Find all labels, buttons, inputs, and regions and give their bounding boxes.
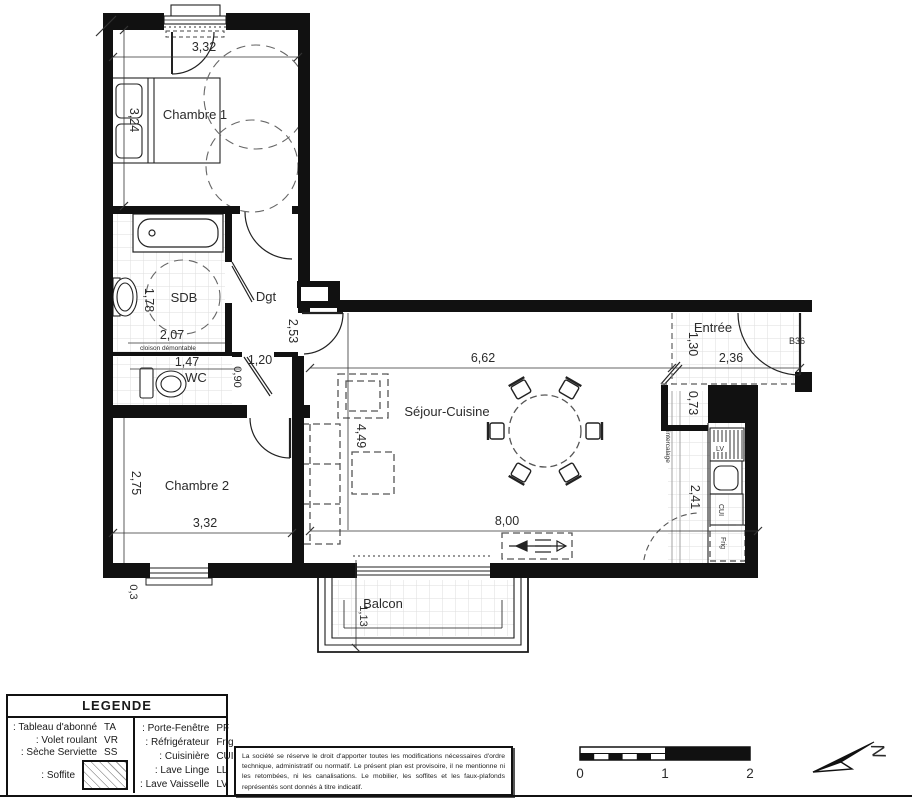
dim-sdb-width: 2,07: [160, 328, 184, 342]
dim-sejour-height: 4,49: [354, 424, 368, 448]
note-partition: cloison démontable: [140, 345, 196, 352]
cooker-label: CUI: [717, 504, 724, 516]
scale-bar: 0 1 2: [576, 747, 754, 781]
legend-item-label: : Tableau d'abonné: [13, 722, 97, 733]
dim-sejour-width: 6,62: [471, 351, 495, 365]
sheet-frame-line: [0, 795, 912, 797]
floor-plan-drawing: Chambre 1 SDB Dgt WC Chambre 2 Séjour-Cu…: [0, 0, 912, 800]
legend-item-label: : Lave Vaisselle: [140, 779, 209, 790]
dim-chambre2-height: 2,75: [129, 471, 143, 495]
fridge-label: Frig: [719, 537, 726, 549]
dining-chairs: [488, 377, 602, 485]
disclaimer-box: La société se réserve le droit d'apporte…: [234, 746, 513, 796]
dim-wc-door-height: 0,90: [231, 366, 243, 387]
legend-item: : Volet roulant VR: [13, 735, 128, 746]
dim-dgt-height: 2,53: [286, 319, 300, 343]
dim-sejour-total-width: 8,00: [495, 514, 519, 528]
dim-sdb-height: 1,78: [142, 288, 156, 312]
toilet: [140, 368, 186, 398]
legend-right-column: : Porte-Fenêtre PF : Réfrigérateur Frig …: [133, 718, 245, 793]
room-label-dgt: Dgt: [256, 289, 277, 304]
legend-left-column: : Tableau d'abonné TA : Volet roulant VR…: [8, 718, 133, 793]
legend-item: : Tableau d'abonné TA: [13, 722, 128, 733]
legend-item-label: : Volet roulant: [36, 735, 97, 746]
legend-item: : Lave Vaisselle LV: [140, 779, 240, 790]
legend-item-label: : Lave Linge: [155, 765, 210, 776]
legend-item-soffite: : Soffite: [13, 760, 128, 790]
washbasin: [113, 278, 137, 316]
kitchen-strip-label: intercalage: [664, 431, 671, 463]
dim-chambre1-height: 3,24: [127, 108, 141, 132]
door-number-label: B36: [789, 336, 805, 346]
legend-item: : Réfrigérateur Frig: [140, 737, 240, 748]
legend-item-label: : Soffite: [41, 770, 75, 781]
dishwasher-label: LV: [716, 446, 724, 453]
dim-kitchen-height: 2,41: [688, 485, 702, 509]
legend-item-label: : Cuisinière: [159, 751, 209, 762]
north-arrow-icon: N: [813, 742, 889, 772]
dim-wc-width: 1,47: [175, 355, 199, 369]
soffit-inset: [301, 287, 328, 301]
dim-chambre2-width: 3,32: [193, 516, 217, 530]
legend-item-code: VR: [104, 735, 128, 746]
north-letter: N: [866, 742, 889, 759]
room-label-chambre1: Chambre 1: [163, 107, 227, 122]
dim-chambre1-width: 3,32: [192, 40, 216, 54]
legend-box: LEGENDE : Tableau d'abonné TA : Volet ro…: [6, 694, 228, 797]
legend-item-code: PF: [216, 723, 240, 734]
dim-wall-offset: 0,3: [127, 584, 139, 599]
room-label-chambre2: Chambre 2: [165, 478, 229, 493]
radiator-symbol: [509, 540, 566, 552]
room-label-sejour: Séjour-Cuisine: [404, 404, 489, 419]
room-label-wc: WC: [185, 370, 207, 385]
legend-item: : Porte-Fenêtre PF: [140, 723, 240, 734]
scale-tick-2: 2: [746, 766, 754, 781]
legend-item: : Cuisinière CUI: [140, 751, 240, 762]
room-label-sdb: SDB: [171, 290, 198, 305]
legend-item-label: : Porte-Fenêtre: [142, 723, 209, 734]
dim-balcon-depth: 1,13: [357, 605, 369, 626]
dim-closet-width: 0,73: [686, 391, 700, 415]
dim-entree-width: 2,36: [719, 351, 743, 365]
legend-item: : Lave Linge LL: [140, 765, 240, 776]
legend-item-label: : Réfrigérateur: [145, 737, 209, 748]
dim-wc-door-width: 1,20: [248, 353, 272, 367]
scale-tick-0: 0: [576, 766, 584, 781]
floor-plan-sheet: Chambre 1 SDB Dgt WC Chambre 2 Séjour-Cu…: [0, 0, 912, 800]
dim-entree-height: 1,30: [686, 332, 700, 356]
legend-item-code: SS: [104, 747, 128, 758]
legend-title: LEGENDE: [8, 696, 226, 718]
legend-item-label: : Sèche Serviette: [21, 747, 97, 758]
soffite-hatch-swatch: [82, 760, 128, 790]
bathtub: [133, 214, 223, 252]
legend-item-code: TA: [104, 722, 128, 733]
legend-item: : Sèche Serviette SS: [13, 747, 128, 758]
scale-tick-1: 1: [661, 766, 669, 781]
